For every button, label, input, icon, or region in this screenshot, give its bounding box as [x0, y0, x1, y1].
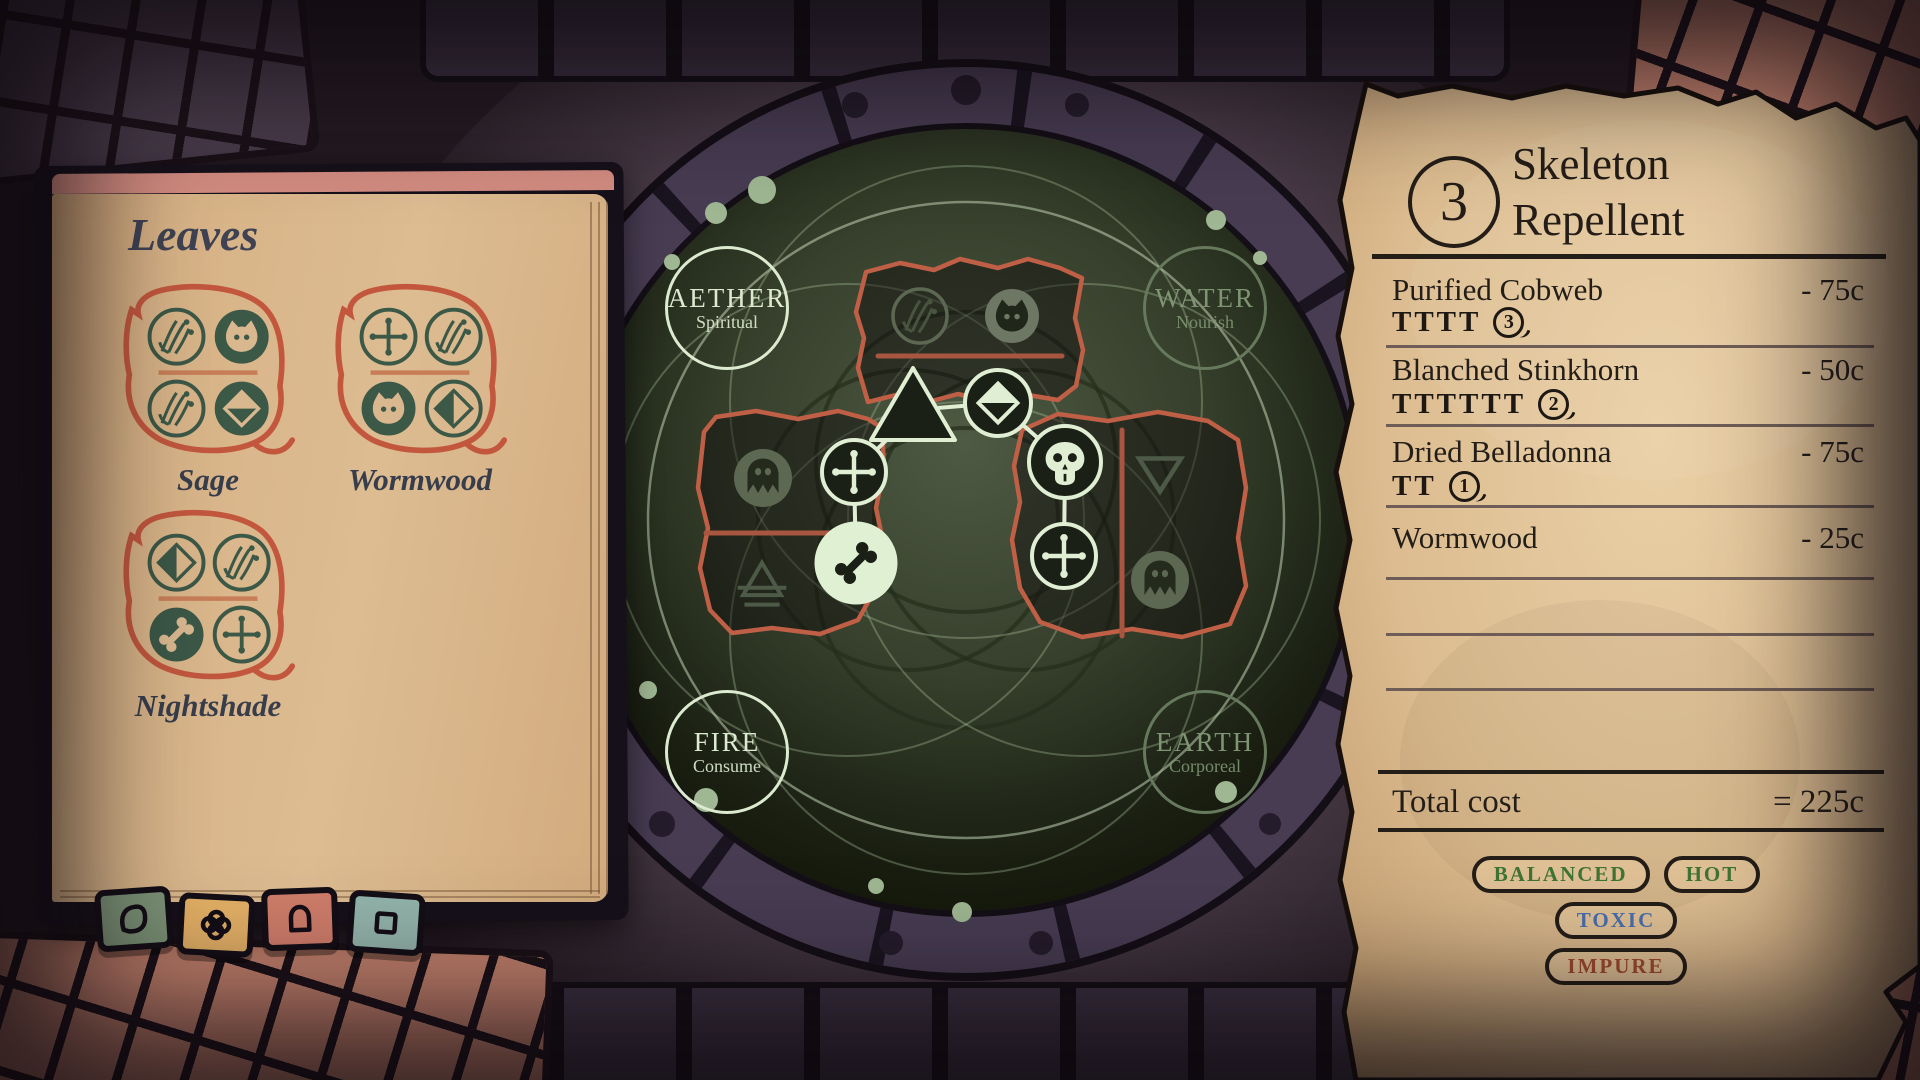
ingredient-row: Dried Belladonna - 75c — [1392, 434, 1864, 470]
tag-impure: IMPURE — [1545, 948, 1686, 985]
total-value: = 225c — [1773, 784, 1864, 821]
tag-balanced: BALANCED — [1472, 856, 1650, 893]
ingredient-cost: - 75c — [1801, 434, 1864, 470]
potion-tags: BALANCED HOT TOXIC IMPURE — [1356, 856, 1876, 985]
ingredient-cost: - 25c — [1801, 520, 1864, 556]
ingredient-separator — [1386, 424, 1874, 427]
recipe-title-line2: Repellent — [1512, 192, 1684, 248]
game-screen: AETHER Spiritual WATER Nourish FIRE Cons… — [0, 0, 1920, 1080]
recipe-title: Skeleton Repellent — [1512, 136, 1684, 248]
empty-slot-separator — [1386, 688, 1874, 691]
recipe-number: 3 — [1408, 156, 1500, 248]
total-row: Total cost = 225c — [1392, 784, 1864, 821]
ingredient-row: Purified Cobweb - 75c — [1392, 272, 1864, 308]
grind-count-icon: 1 — [1449, 471, 1480, 502]
ingredient-separator — [1386, 345, 1874, 348]
tag-toxic: TOXIC — [1555, 902, 1677, 939]
ingredient-marks: TT 1 — [1392, 468, 1480, 504]
empty-slot-separator — [1386, 633, 1874, 636]
stir-marks: TT — [1392, 470, 1437, 503]
stir-marks: TTTT — [1392, 306, 1481, 339]
ingredient-separator — [1386, 577, 1874, 580]
ingredient-row: Blanched Stinkhorn - 50c — [1392, 352, 1864, 388]
ingredient-name: Dried Belladonna — [1392, 434, 1612, 470]
recipe-title-line1: Skeleton — [1512, 136, 1684, 192]
ingredient-name: Wormwood — [1392, 520, 1538, 556]
stir-marks: TTTTTT — [1392, 388, 1526, 421]
tag-hot: HOT — [1664, 856, 1761, 893]
total-rule-bottom — [1378, 828, 1884, 832]
total-label: Total cost — [1392, 784, 1521, 821]
ingredient-marks: TTTT 3 — [1392, 304, 1524, 340]
ingredient-name: Purified Cobweb — [1392, 272, 1603, 308]
ingredient-name: Blanched Stinkhorn — [1392, 352, 1639, 388]
grind-count-icon: 2 — [1538, 389, 1569, 420]
title-rule — [1372, 254, 1886, 259]
grind-count-icon: 3 — [1493, 307, 1524, 338]
total-rule-top — [1378, 770, 1884, 774]
ingredient-separator — [1386, 505, 1874, 508]
ingredient-row: Wormwood - 25c — [1392, 520, 1864, 556]
ingredient-marks: TTTTTT 2 — [1392, 386, 1569, 422]
ingredient-cost: - 75c — [1801, 272, 1864, 308]
ingredient-cost: - 50c — [1801, 352, 1864, 388]
